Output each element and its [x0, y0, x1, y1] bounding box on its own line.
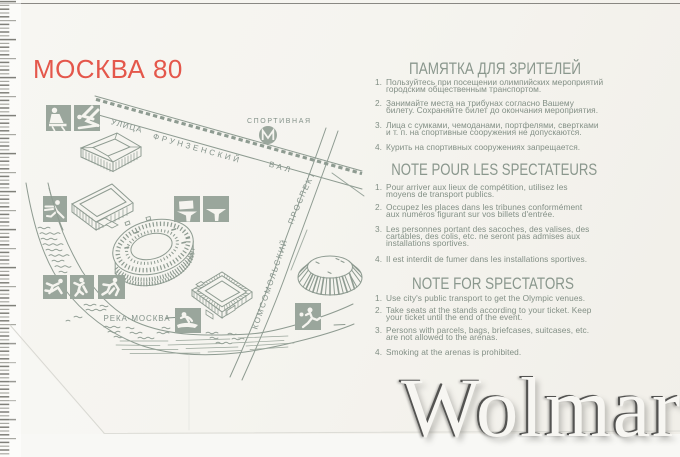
svg-text:УЛИЦА: УЛИЦА: [110, 117, 144, 134]
svg-text:ФРУНЗЕНСКИЙ: ФРУНЗЕНСКИЙ: [152, 132, 243, 166]
svg-text:СПОРТИВНАЯ: СПОРТИВНАЯ: [247, 118, 312, 125]
svg-text:ВАЛ: ВАЛ: [268, 160, 294, 175]
svg-text:РЕКА-МОСКВА: РЕКА-МОСКВА: [104, 314, 171, 323]
